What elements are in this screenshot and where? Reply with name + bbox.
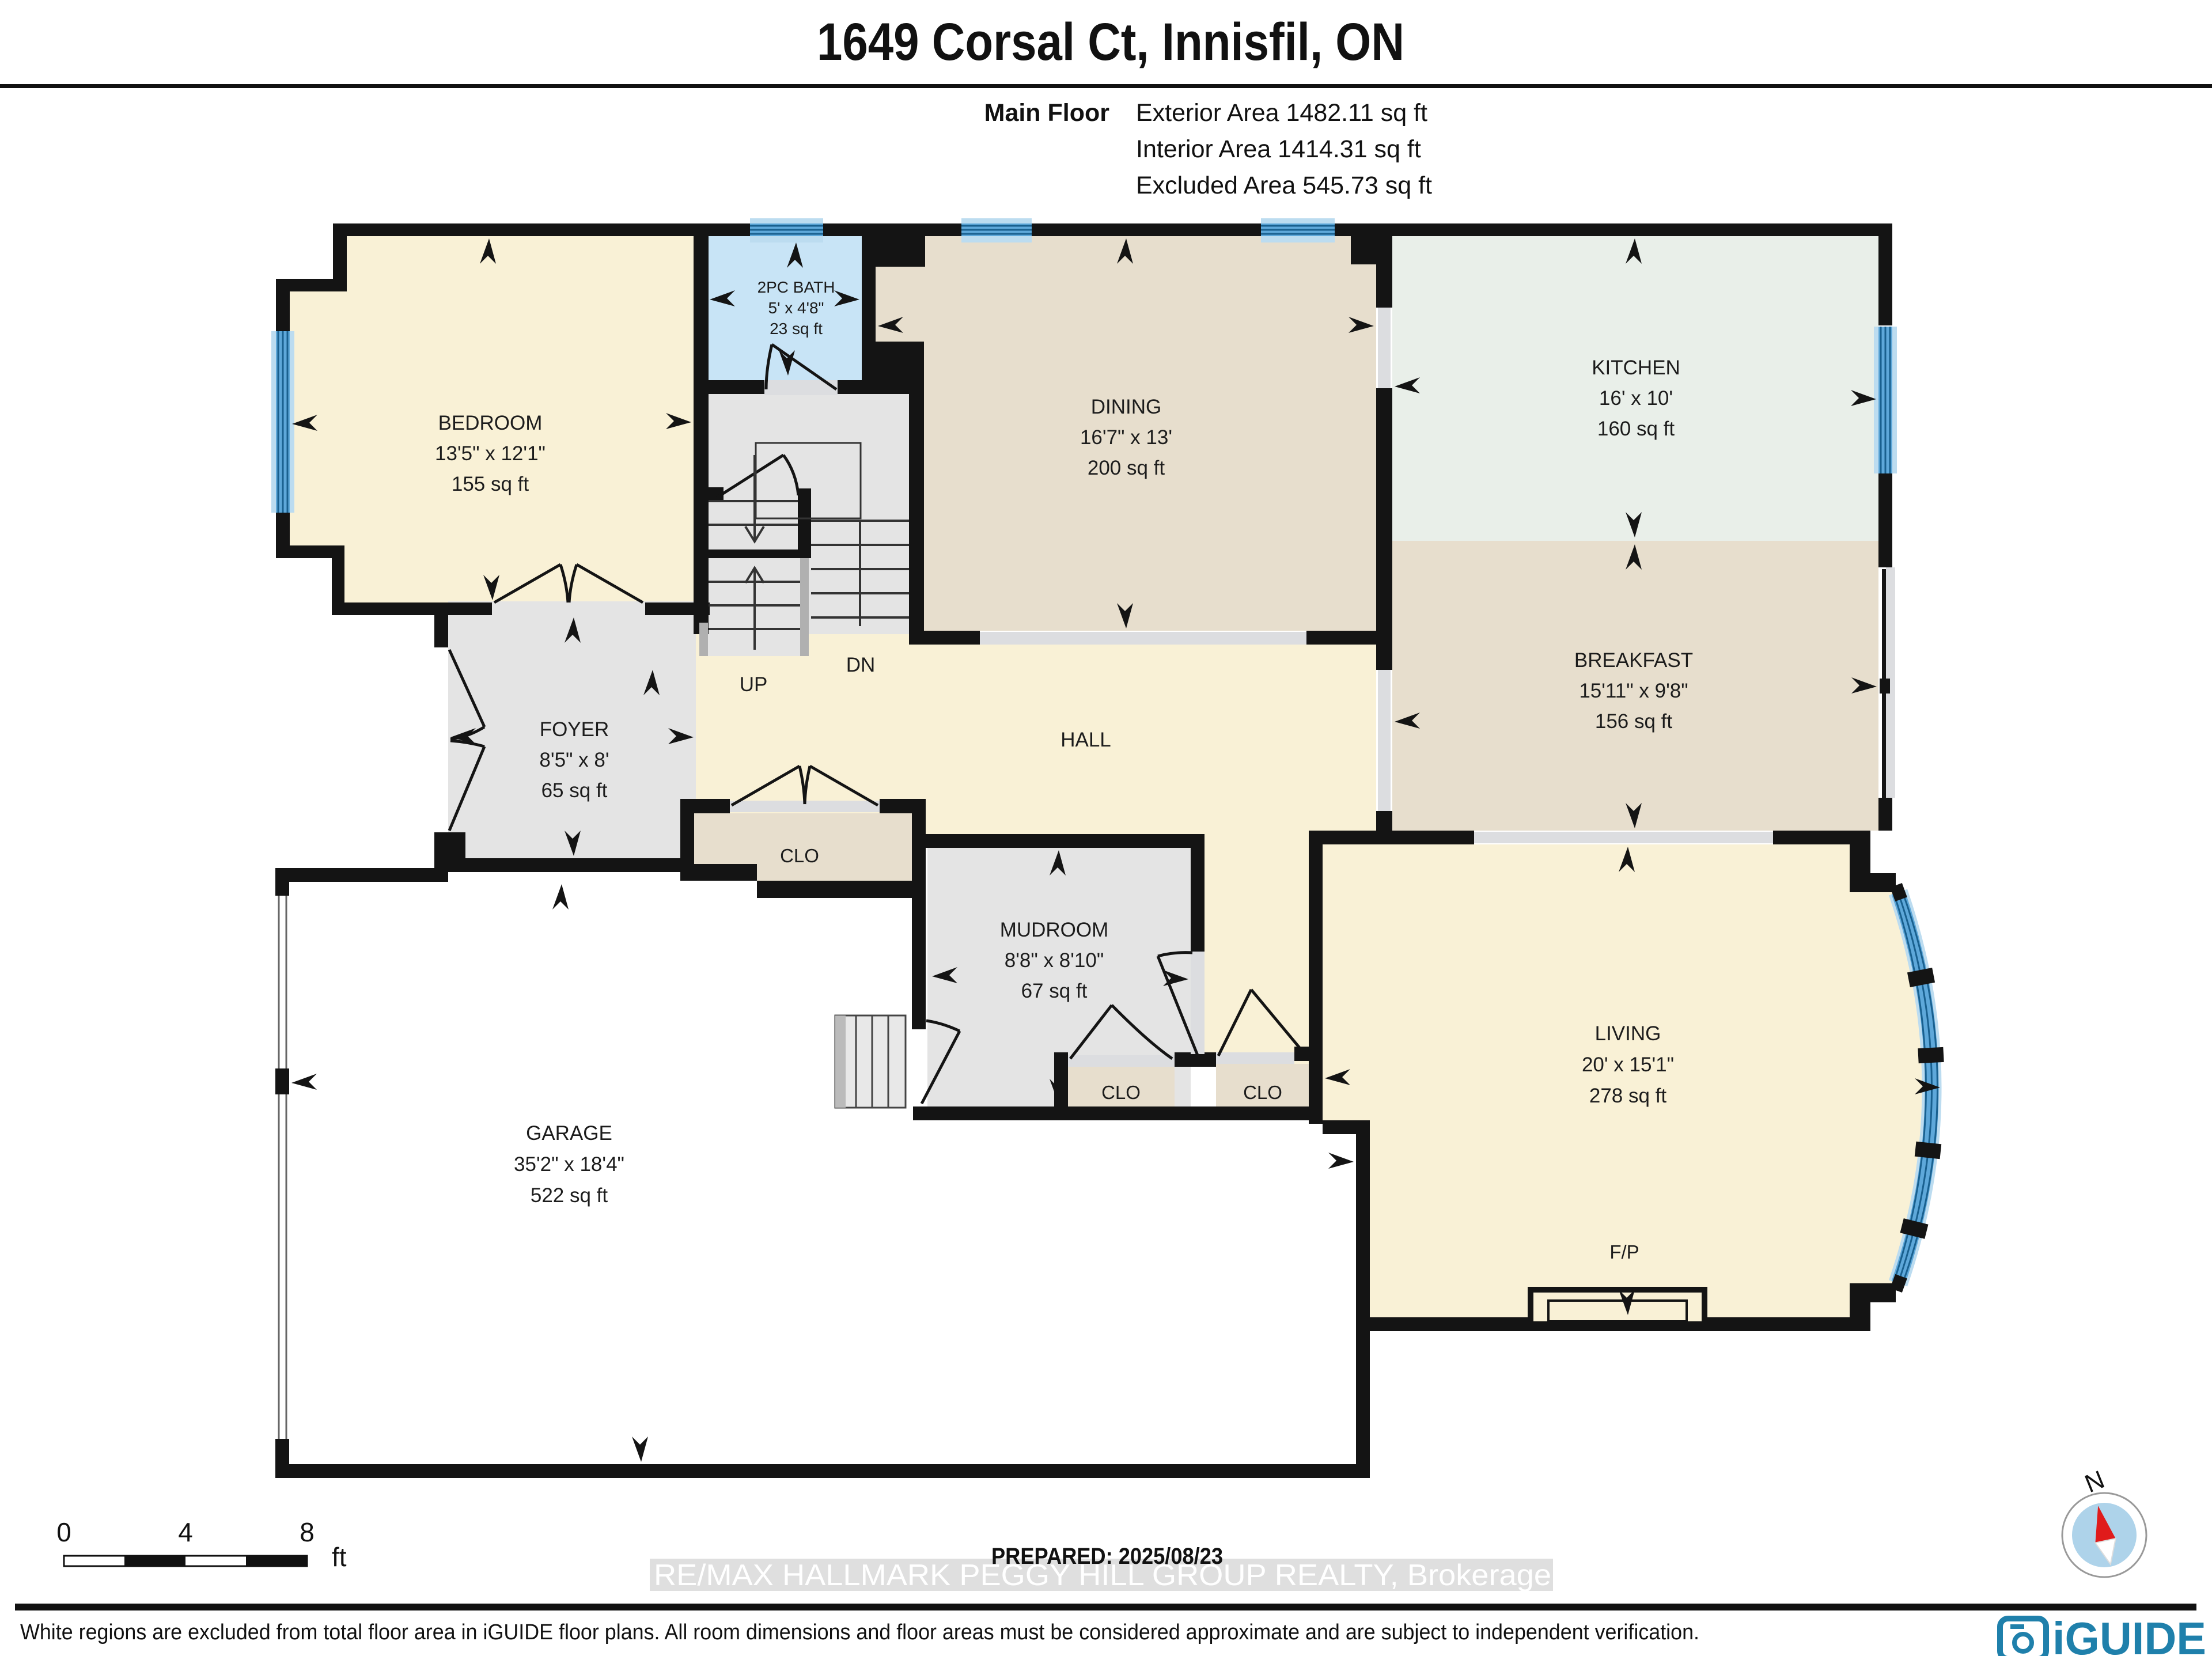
- svg-text:8'5" x 8': 8'5" x 8': [539, 749, 609, 771]
- svg-text:DN: DN: [846, 654, 876, 676]
- svg-text:155 sq ft: 155 sq ft: [452, 473, 529, 495]
- svg-text:Main Floor: Main Floor: [984, 99, 1110, 127]
- svg-text:16'7" x 13': 16'7" x 13': [1080, 426, 1172, 449]
- svg-text:35'2" x 18'4": 35'2" x 18'4": [514, 1153, 624, 1176]
- svg-text:RE/MAX HALLMARK PEGGY HILL GRO: RE/MAX HALLMARK PEGGY HILL GROUP REALTY,…: [654, 1559, 1551, 1592]
- svg-text:2PC BATH: 2PC BATH: [757, 278, 835, 296]
- svg-text:160 sq ft: 160 sq ft: [1597, 418, 1675, 440]
- svg-text:Interior Area 1414.31 sq ft: Interior Area 1414.31 sq ft: [1136, 135, 1421, 163]
- svg-text:4: 4: [178, 1517, 193, 1547]
- svg-text:iGUIDE: iGUIDE: [2052, 1613, 2206, 1656]
- svg-text:156 sq ft: 156 sq ft: [1595, 710, 1673, 733]
- svg-text:LIVING: LIVING: [1595, 1022, 1661, 1045]
- svg-text:16' x 10': 16' x 10': [1599, 387, 1673, 410]
- svg-text:UP: UP: [740, 673, 768, 696]
- svg-text:65 sq ft: 65 sq ft: [541, 779, 608, 802]
- svg-text:GARAGE: GARAGE: [526, 1122, 612, 1145]
- svg-text:BREAKFAST: BREAKFAST: [1574, 649, 1693, 672]
- svg-text:1649 Corsal Ct, Innisfil, ON: 1649 Corsal Ct, Innisfil, ON: [817, 13, 1404, 71]
- svg-text:23 sq ft: 23 sq ft: [770, 320, 823, 338]
- svg-text:DINING: DINING: [1091, 396, 1162, 418]
- svg-text:13'5" x 12'1": 13'5" x 12'1": [435, 442, 546, 465]
- svg-text:15'11" x 9'8": 15'11" x 9'8": [1579, 680, 1688, 702]
- svg-text:5' x 4'8": 5' x 4'8": [768, 299, 824, 317]
- svg-text:ft: ft: [332, 1542, 347, 1572]
- svg-text:8: 8: [300, 1517, 315, 1547]
- svg-text:CLO: CLO: [1101, 1082, 1141, 1103]
- svg-text:CLO: CLO: [780, 845, 819, 866]
- svg-text:KITCHEN: KITCHEN: [1592, 357, 1680, 379]
- svg-text:F/P: F/P: [1609, 1241, 1639, 1263]
- svg-text:BEDROOM: BEDROOM: [438, 412, 543, 434]
- svg-text:20' x 15'1": 20' x 15'1": [1582, 1054, 1674, 1076]
- svg-text:FOYER: FOYER: [540, 718, 609, 741]
- svg-text:0: 0: [56, 1517, 71, 1547]
- svg-text:8'8" x 8'10": 8'8" x 8'10": [1005, 949, 1104, 972]
- svg-text:278 sq ft: 278 sq ft: [1589, 1085, 1667, 1107]
- svg-text:MUDROOM: MUDROOM: [1000, 919, 1109, 941]
- svg-text:Excluded Area 545.73 sq ft: Excluded Area 545.73 sq ft: [1136, 172, 1432, 199]
- svg-text:White regions are excluded fro: White regions are excluded from total fl…: [20, 1620, 1699, 1644]
- svg-text:522 sq ft: 522 sq ft: [531, 1184, 608, 1207]
- svg-text:HALL: HALL: [1060, 729, 1111, 751]
- svg-text:67 sq ft: 67 sq ft: [1021, 980, 1088, 1002]
- svg-text:CLO: CLO: [1243, 1082, 1282, 1103]
- svg-text:200 sq ft: 200 sq ft: [1088, 457, 1165, 479]
- svg-text:Exterior Area 1482.11 sq ft: Exterior Area 1482.11 sq ft: [1136, 99, 1427, 127]
